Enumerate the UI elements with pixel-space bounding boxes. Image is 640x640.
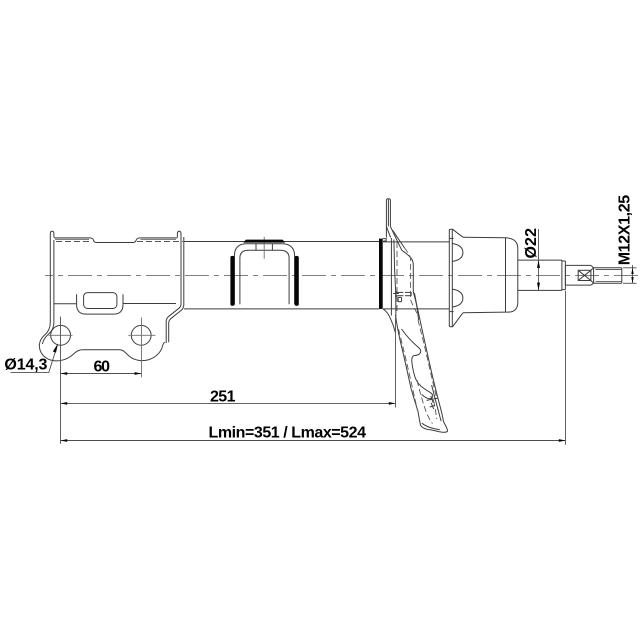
svg-text:Ø22: Ø22 [523, 228, 540, 259]
svg-text:M12X1,25: M12X1,25 [617, 195, 634, 266]
svg-text:251: 251 [210, 388, 236, 405]
svg-text:Ø14,3: Ø14,3 [4, 357, 47, 374]
svg-text:Lmin=351 / Lmax=524: Lmin=351 / Lmax=524 [209, 425, 367, 442]
svg-text:60: 60 [94, 359, 111, 376]
